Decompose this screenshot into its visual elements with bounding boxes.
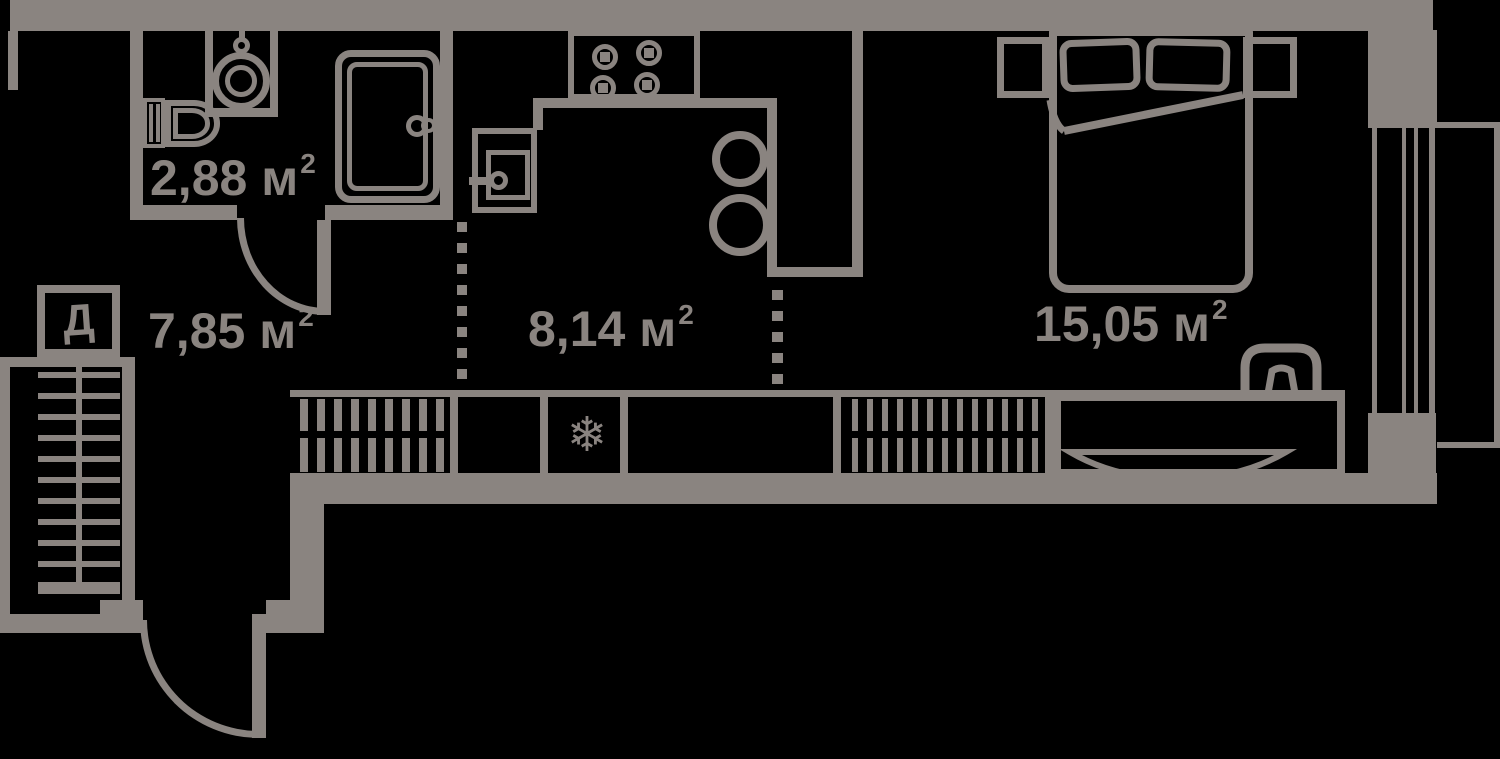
details-layer [0,0,1500,759]
area-sup: 2 [298,301,314,332]
area-unit: м [1159,296,1210,352]
area-value: 8,14 [528,301,625,357]
area-label-hallway: 7,85 м2 [148,306,312,356]
sideboard-drawer-front [1070,452,1286,479]
blanket-fold-line [1064,95,1243,131]
stool-icon [1245,348,1317,399]
area-unit: м [625,301,676,357]
area-sup: 2 [1212,294,1228,325]
area-value: 15,05 [1034,296,1159,352]
stool-inner [1267,368,1296,399]
area-label-bedroom: 15,05 м2 [1034,299,1226,349]
blanket-corner-fold [1050,100,1064,131]
area-sup: 2 [678,299,694,330]
area-value: 2,88 [150,150,247,206]
floor-plan: Д ❄ [0,0,1500,759]
area-label-kitchen: 8,14 м2 [528,304,692,354]
area-label-bathroom: 2,88 м2 [150,153,314,203]
area-sup: 2 [300,148,316,179]
area-unit: м [247,150,298,206]
area-value: 7,85 [148,303,245,359]
area-unit: м [245,303,296,359]
